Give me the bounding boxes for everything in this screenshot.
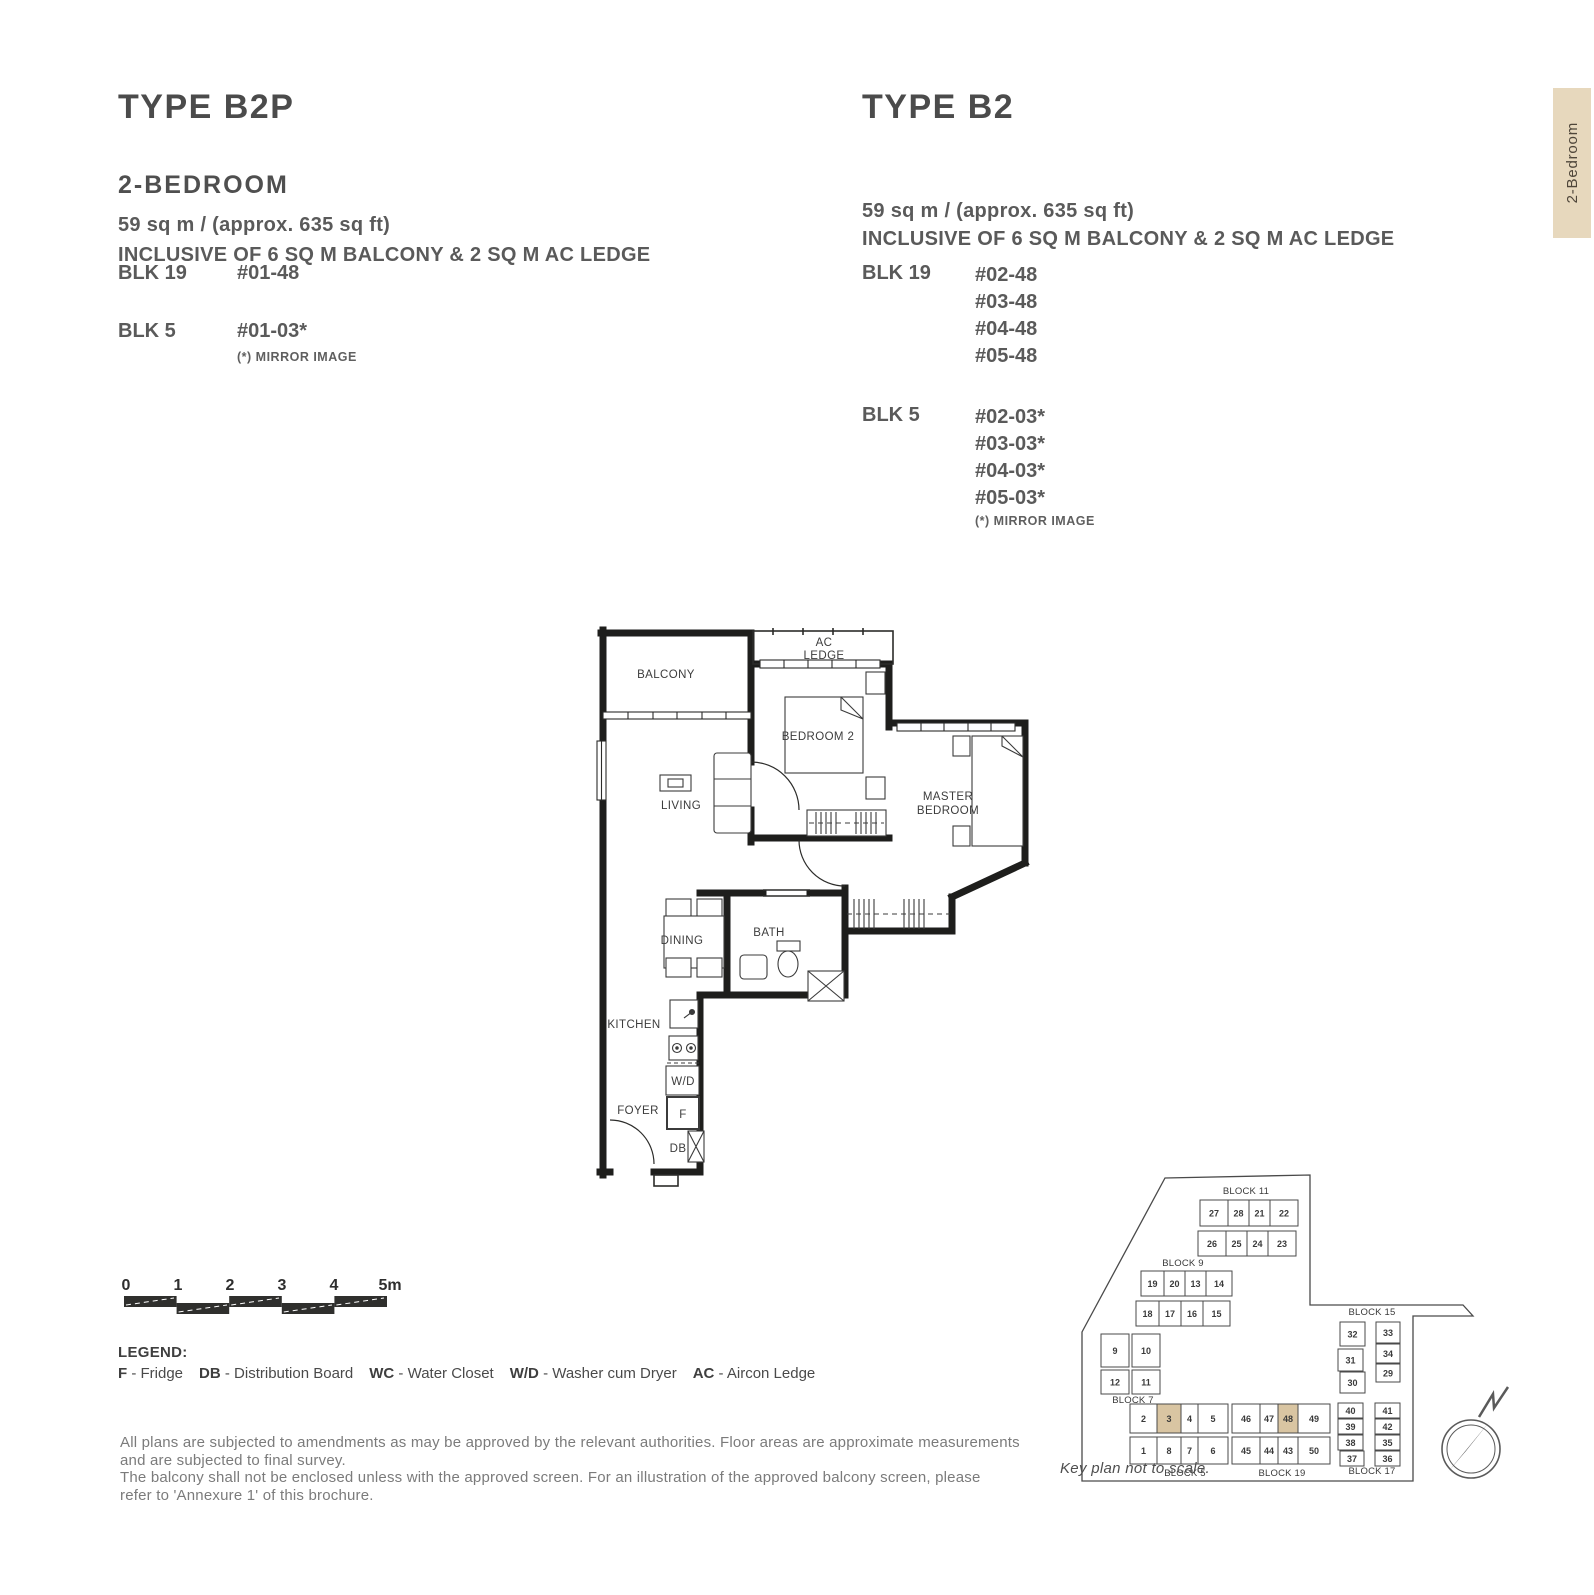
- keyplan-unit-number: 13: [1190, 1279, 1200, 1289]
- keyplan-unit-number: 11: [1141, 1378, 1151, 1388]
- svg-text:0: 0: [122, 1277, 131, 1294]
- keyplan-unit-number: 30: [1347, 1378, 1357, 1388]
- keyplan-unit-number: 48: [1283, 1414, 1293, 1424]
- keyplan-unit-number: 8: [1166, 1446, 1171, 1456]
- room-label-kitchen: KITCHEN: [607, 1019, 660, 1031]
- keyplan-unit-number: 42: [1382, 1422, 1392, 1432]
- blk-label: BLK 19: [118, 262, 187, 285]
- room-label-ledge: LEDGE: [804, 650, 845, 662]
- blk-label: BLK 5: [118, 320, 176, 343]
- keyplan-unit-number: 39: [1345, 1422, 1355, 1432]
- scale-bar-segments: [124, 1296, 387, 1314]
- keyplan-unit-number: 20: [1169, 1279, 1179, 1289]
- room-label-living: LIVING: [661, 800, 701, 812]
- section-tab-label: 2-Bedroom: [1564, 122, 1581, 203]
- left-header: TYPE B2P 2-BEDROOM 59 sq m / (approx. 63…: [118, 88, 650, 267]
- legend-item: F - Fridge: [118, 1365, 183, 1382]
- disclaimer-line: refer to 'Annexure 1' of this brochure.: [120, 1487, 1020, 1505]
- keyplan-unit-number: 34: [1383, 1349, 1393, 1359]
- legend-item: W/D - Washer cum Dryer: [510, 1365, 677, 1382]
- room-label-f: F: [679, 1109, 686, 1121]
- keyplan-unit-number: 16: [1187, 1309, 1197, 1319]
- room-label-master-2: BEDROOM: [917, 805, 979, 817]
- keyplan-block-label: BLOCK 11: [1223, 1186, 1269, 1197]
- room-label-ac: AC: [816, 637, 833, 649]
- keyplan-unit-number: 25: [1231, 1239, 1241, 1249]
- keyplan-unit-number: 5: [1210, 1414, 1215, 1424]
- left-title: TYPE B2P: [118, 88, 650, 127]
- keyplan-unit-number: 31: [1345, 1356, 1355, 1366]
- compass: [1442, 1387, 1508, 1478]
- keyplan-unit-number: 40: [1345, 1406, 1355, 1416]
- legend-item: WC - Water Closet: [369, 1365, 493, 1382]
- keyplan-unit-number: 37: [1347, 1454, 1357, 1464]
- keyplan-unit-number: 26: [1207, 1239, 1217, 1249]
- legend-title: LEGEND:: [118, 1344, 831, 1361]
- blk-label: BLK 19: [862, 262, 931, 285]
- keyplan-unit-number: 44: [1264, 1446, 1274, 1456]
- scale-bar: 0 1 2 3 4 5m: [118, 1274, 403, 1324]
- compass-outer-ring: [1442, 1420, 1500, 1478]
- keyplan-unit-number: 27: [1209, 1209, 1219, 1219]
- north-icon: [1479, 1387, 1508, 1417]
- left-subtitle: 2-BEDROOM: [118, 171, 650, 200]
- keyplan-unit-number: 36: [1382, 1454, 1392, 1464]
- blk-units: #01-03*: [237, 320, 307, 343]
- legend: LEGEND: F - FridgeDB - Distribution Boar…: [118, 1344, 831, 1382]
- keyplan-unit-number: 45: [1241, 1446, 1251, 1456]
- blk-units-list: #02-48 #03-48 #04-48 #05-48: [975, 262, 1037, 370]
- keyplan-unit-number: 22: [1279, 1209, 1289, 1219]
- keyplan-unit-number: 14: [1214, 1279, 1224, 1289]
- svg-text:3: 3: [278, 1277, 287, 1294]
- disclaimer-line: and are subjected to final survey.: [120, 1452, 1020, 1470]
- scale-bar-labels: 0 1 2 3 4 5m: [122, 1277, 402, 1294]
- svg-text:2: 2: [226, 1277, 235, 1294]
- keyplan-unit-number: 9: [1112, 1346, 1117, 1356]
- keyplan-unit-number: 7: [1187, 1446, 1192, 1456]
- keyplan-unit-number: 28: [1233, 1209, 1243, 1219]
- disclaimer-line: All plans are subjected to amendments as…: [120, 1434, 1020, 1452]
- blk-units-list: #02-03* #03-03* #04-03* #05-03*: [975, 404, 1045, 512]
- keyplan-unit-number: 41: [1382, 1406, 1392, 1416]
- keyplan-unit-number: 17: [1165, 1309, 1175, 1319]
- keyplan-unit-number: 33: [1383, 1328, 1393, 1338]
- keyplan-unit-number: 6: [1210, 1446, 1215, 1456]
- keyplan-block-label: BLOCK 9: [1162, 1258, 1204, 1269]
- disclaimer-line: The balcony shall not be enclosed unless…: [120, 1469, 1020, 1487]
- keyplan-unit-number: 35: [1382, 1438, 1392, 1448]
- right-title: TYPE B2: [862, 88, 1014, 127]
- keyplan: 2728212226252423BLOCK 111920131418171615…: [1055, 1150, 1520, 1495]
- room-label-balcony: BALCONY: [637, 669, 695, 681]
- keyplan-unit-number: 50: [1309, 1446, 1319, 1456]
- room-label-bedroom2: BEDROOM 2: [782, 731, 855, 743]
- svg-text:5m: 5m: [378, 1277, 401, 1294]
- compass-inner-ring: [1447, 1425, 1495, 1473]
- keyplan-unit-number: 21: [1254, 1209, 1264, 1219]
- keyplan-block-label: BLOCK 19: [1258, 1468, 1305, 1479]
- keyplan-unit-number: 1: [1141, 1446, 1146, 1456]
- keyplan-unit-number: 15: [1211, 1309, 1221, 1319]
- keyplan-unit-number: 19: [1147, 1279, 1157, 1289]
- right-mirror-note: (*) MIRROR IMAGE: [975, 514, 1095, 528]
- svg-text:1: 1: [174, 1277, 183, 1294]
- keyplan-unit-number: 23: [1277, 1239, 1287, 1249]
- keyplan-unit-number: 32: [1347, 1330, 1357, 1340]
- disclaimer-text: All plans are subjected to amendments as…: [120, 1434, 1020, 1504]
- room-label-master-1: MASTER: [923, 791, 973, 803]
- keyplan-units: 2728212226252423BLOCK 111920131418171615…: [1101, 1186, 1400, 1479]
- keyplan-unit-number: 4: [1187, 1414, 1192, 1424]
- keyplan-unit-number: 38: [1345, 1438, 1355, 1448]
- keyplan-caption: Key plan not to scale.: [1060, 1460, 1210, 1477]
- keyplan-block-label: BLOCK 15: [1348, 1307, 1395, 1318]
- keyplan-unit-number: 29: [1383, 1369, 1393, 1379]
- room-label-dining: DINING: [661, 935, 704, 947]
- room-label-bath: BATH: [753, 927, 784, 939]
- legend-item: DB - Distribution Board: [199, 1365, 353, 1382]
- blk-label: BLK 5: [862, 404, 920, 427]
- keyplan-unit-number: 46: [1241, 1414, 1251, 1424]
- room-label-foyer: FOYER: [617, 1105, 659, 1117]
- legend-items: F - FridgeDB - Distribution BoardWC - Wa…: [118, 1365, 831, 1382]
- floorplan: BALCONY AC LEDGE BEDROOM 2 MASTER BEDROO…: [585, 612, 1035, 1197]
- left-area: 59 sq m / (approx. 635 sq ft): [118, 214, 650, 237]
- svg-text:4: 4: [330, 1277, 339, 1294]
- keyplan-unit-number: 49: [1309, 1414, 1319, 1424]
- section-tab-2-bedroom: 2-Bedroom: [1553, 88, 1591, 238]
- keyplan-unit-number: 3: [1166, 1414, 1171, 1424]
- left-inclusive: INCLUSIVE OF 6 SQ M BALCONY & 2 SQ M AC …: [118, 244, 650, 267]
- keyplan-unit-number: 47: [1264, 1414, 1274, 1424]
- left-mirror-note: (*) MIRROR IMAGE: [237, 350, 357, 364]
- keyplan-unit-number: 10: [1141, 1346, 1151, 1356]
- keyplan-unit-number: 2: [1141, 1414, 1146, 1424]
- keyplan-unit-number: 12: [1110, 1378, 1120, 1388]
- keyplan-unit-number: 24: [1252, 1239, 1262, 1249]
- keyplan-unit-number: 18: [1142, 1309, 1152, 1319]
- room-label-db: DB: [670, 1143, 687, 1155]
- right-header: TYPE B2 59 sq m / (approx. 635 sq ft) IN…: [862, 88, 1014, 127]
- right-inclusive: INCLUSIVE OF 6 SQ M BALCONY & 2 SQ M AC …: [862, 228, 1394, 251]
- right-area: 59 sq m / (approx. 635 sq ft): [862, 200, 1134, 223]
- keyplan-block-label: BLOCK 17: [1348, 1466, 1395, 1477]
- room-label-wd: W/D: [671, 1076, 695, 1088]
- blk-units: #01-48: [237, 262, 299, 285]
- legend-item: AC - Aircon Ledge: [693, 1365, 816, 1382]
- keyplan-unit-number: 43: [1283, 1446, 1293, 1456]
